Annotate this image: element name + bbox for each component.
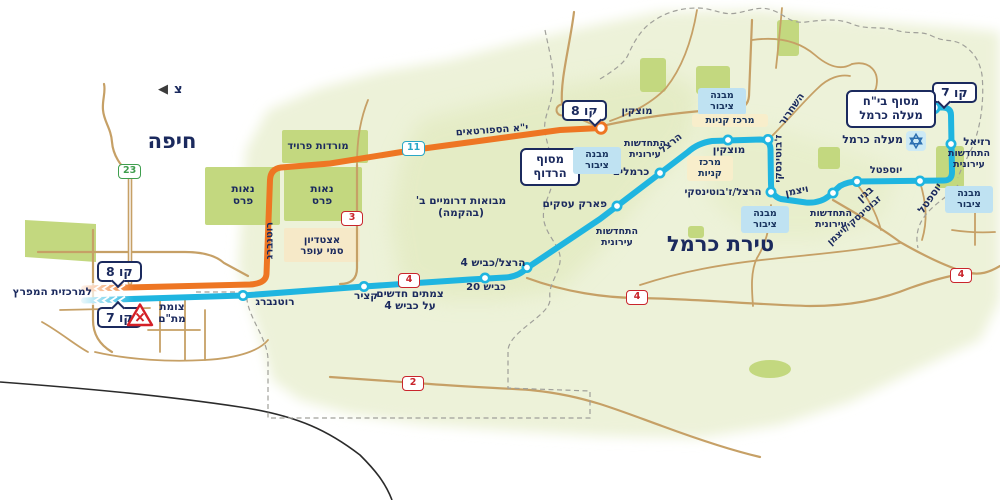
line7-badge-terminal: קו 7: [932, 82, 977, 103]
stop-label-herzl-jabotinsky: הרצל/ז'בוטינסקי: [681, 187, 765, 198]
label-maale-carmel: מעלה כרמל: [847, 134, 903, 146]
area-label-neot-peres-west: נאות פרס: [219, 184, 267, 208]
street-label-kvish20: כביש 20: [462, 282, 510, 293]
destination-hamifratz: למרכזית המפרץ: [16, 287, 92, 299]
shopping-center-box-1: מרכז קניות: [692, 114, 768, 127]
street-label-motzkin: מוצקין: [615, 106, 659, 117]
transit-map: ◀ צ חיפה טירת כרמל למרכזית המפרץ קו 8 קו…: [0, 0, 1000, 500]
area-label-urban-renewal-1: התחדשות עירונית: [611, 139, 679, 160]
area-label-urban-renewal-4: התחדשות עירונית: [938, 149, 1000, 170]
stop-label-park-asakim: פארק עסקים: [543, 199, 607, 211]
road-badge-4-south: 4: [626, 290, 648, 305]
public-building-box-1: מבנה ציבור: [573, 147, 621, 174]
note-new-junctions: צמתים חדשים על כביש 4: [366, 289, 454, 313]
area-label-mevoot-dromiim: מבואות דרומיים ב' (בהקמה): [408, 196, 514, 220]
street-label-yoseftal: יוספטל: [866, 165, 906, 176]
street-label-jabotinsky: ז'בוטינסקי: [773, 129, 784, 189]
north-arrow-icon: ◀: [158, 82, 168, 97]
public-building-box-3: מבנה ציבור: [741, 206, 789, 233]
road-badge-2: 2: [402, 376, 424, 391]
public-building-box-2: מבנה ציבור: [698, 88, 746, 115]
stop-label-herzl-kvish4: הרצל/כביש 4: [450, 258, 536, 270]
north-label: צ: [174, 82, 183, 97]
star-of-david-icon: [906, 131, 926, 151]
terminal-hardof: מסוף הרדוף: [520, 148, 580, 186]
stop-label-rotenberg: רוטנברג: [251, 297, 299, 309]
area-label-urban-renewal-2: התחדשות עירונית: [583, 227, 651, 248]
area-label-urban-renewal-3: התחדשות עירונית: [797, 209, 865, 230]
note-tzomet-matam: צומת מת"ם: [152, 302, 192, 326]
road-badge-23: 23: [118, 164, 141, 179]
terminal-maale-carmel-hospital: מסוף בי"ח מעלה כרמל: [846, 90, 936, 128]
area-label-neot-peres-east: נאות פרס: [298, 184, 346, 208]
street-label-rotenberg: רוטנברג: [264, 215, 275, 267]
city-label-haifa: חיפה: [128, 130, 216, 154]
area-label-stadium: אצטדיון סמי עופר: [283, 235, 361, 257]
road-badge-11: 11: [402, 141, 425, 156]
line8-badge-west: קו 8: [97, 261, 142, 282]
city-label-tirat-carmel: טירת כרמל: [648, 233, 793, 257]
junction-warning-icon: [126, 302, 154, 332]
road-badge-3: 3: [341, 211, 363, 226]
map-canvas: [0, 0, 1000, 500]
line8-badge-hardof: קו 8: [562, 100, 607, 121]
north-indicator: ◀ צ: [158, 82, 183, 97]
area-label-mordot-freud: מורדות פרויד: [283, 141, 353, 152]
shopping-center-box-2: מרכז קניות: [687, 156, 733, 181]
road-badge-4-west: 4: [398, 273, 420, 288]
stop-label-motzkin: מוצקין: [707, 145, 751, 157]
public-building-box-4: מבנה ציבור: [945, 186, 993, 213]
road-badge-4-east: 4: [950, 268, 972, 283]
stop-label-raziel: רזיאל: [956, 137, 998, 149]
